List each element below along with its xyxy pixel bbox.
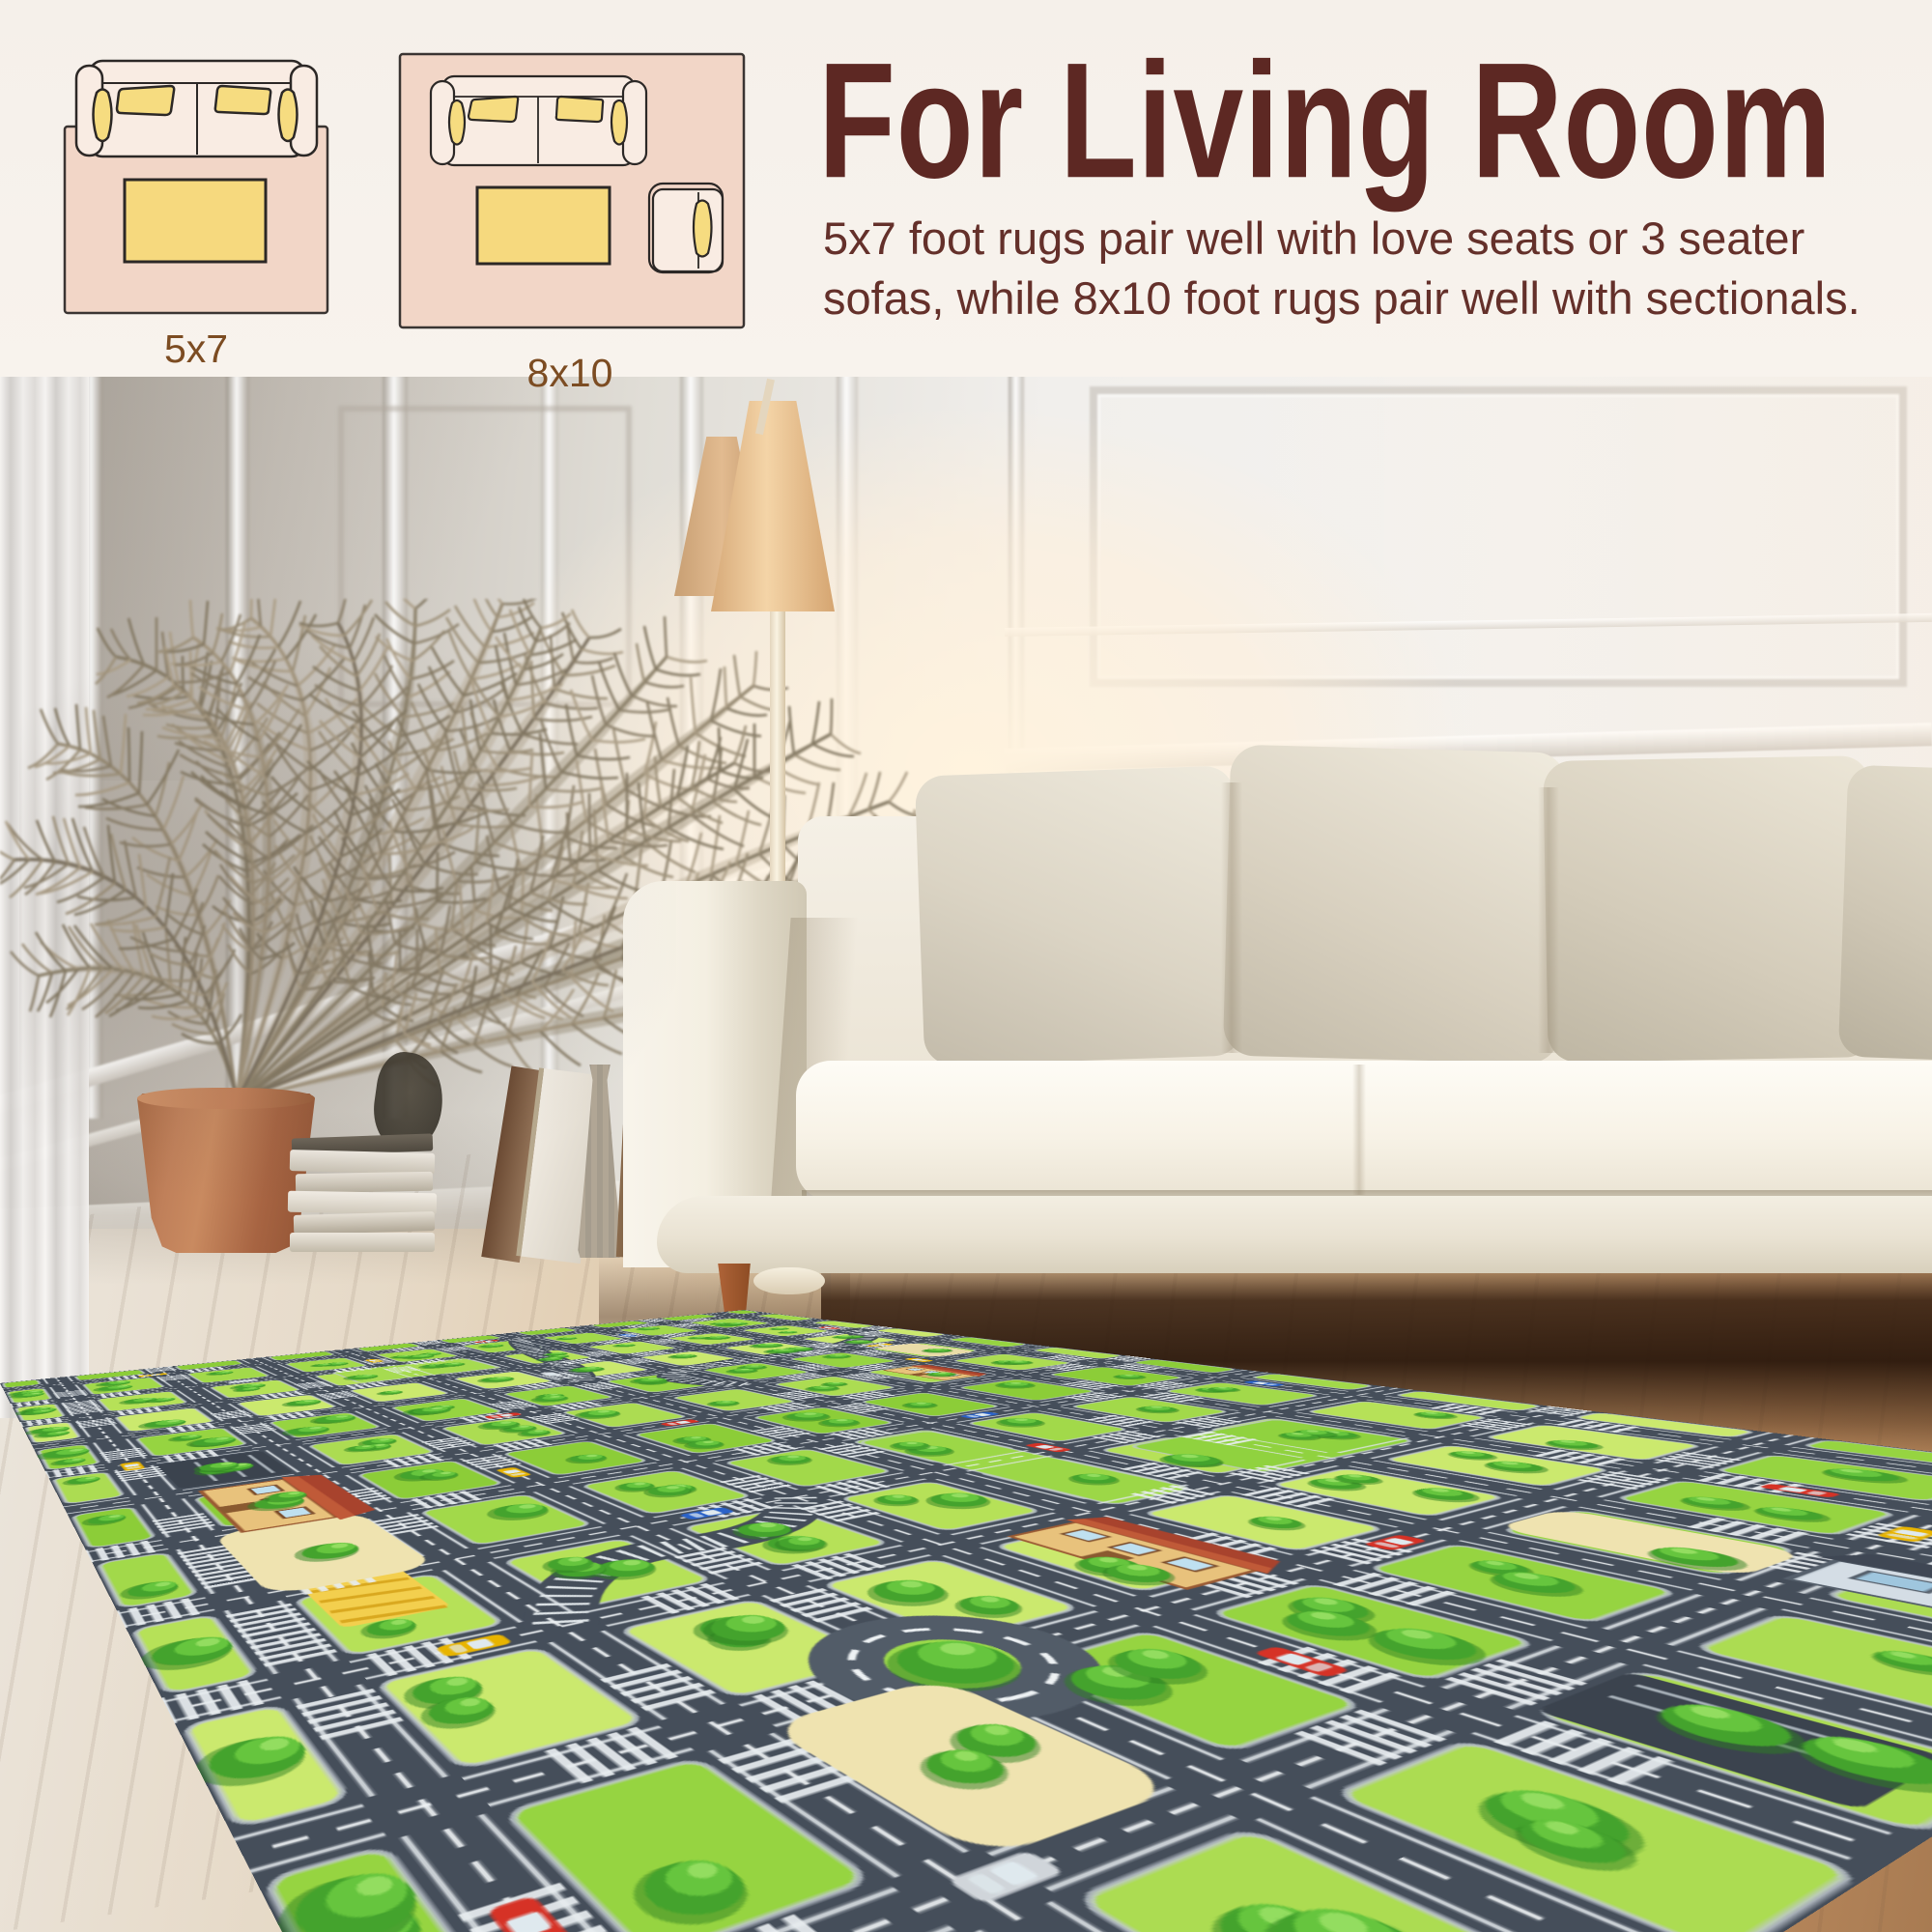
svg-text:5x7: 5x7 xyxy=(164,327,228,371)
svg-text:8x10: 8x10 xyxy=(527,351,613,395)
